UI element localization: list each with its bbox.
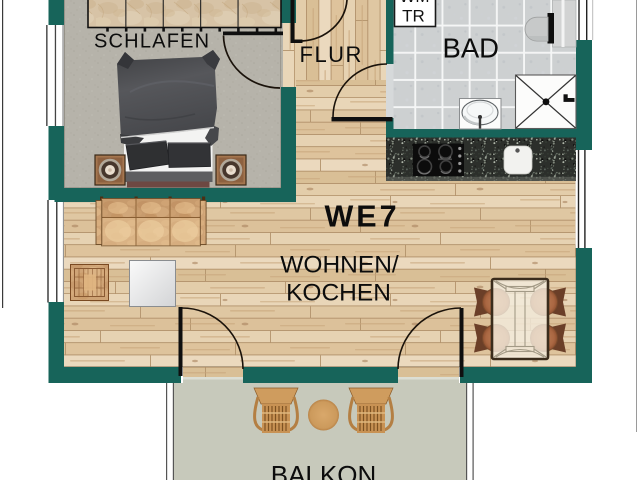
svg-text:WM: WM bbox=[399, 0, 429, 6]
svg-text:BALKON: BALKON bbox=[271, 460, 377, 480]
svg-text:FLUR: FLUR bbox=[300, 42, 363, 67]
svg-text:SCHLAFEN: SCHLAFEN bbox=[94, 31, 210, 53]
svg-text:KOCHEN: KOCHEN bbox=[286, 280, 391, 307]
svg-text:BAD: BAD bbox=[443, 33, 500, 64]
svg-text:TR: TR bbox=[402, 7, 425, 26]
svg-text:WOHNEN/: WOHNEN/ bbox=[280, 252, 399, 279]
svg-text:WE7: WE7 bbox=[325, 200, 400, 234]
